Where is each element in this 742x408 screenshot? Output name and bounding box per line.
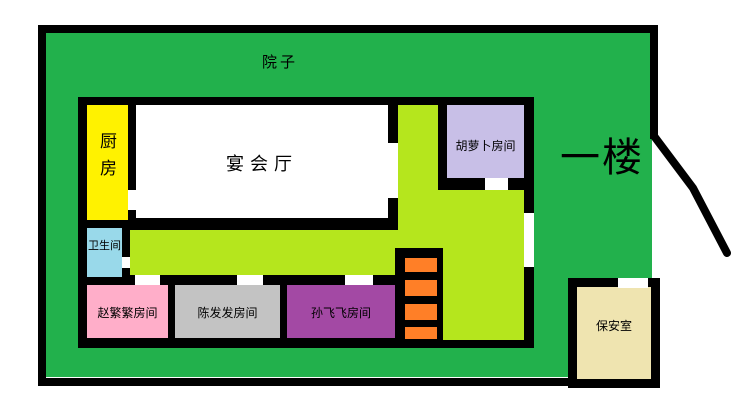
chen-room-label: 陈发发房间 [175, 304, 280, 321]
kitchen-label: 厨房 [94, 132, 119, 186]
carrot-room-label: 胡萝卜房间 [447, 137, 524, 154]
door-building-east [524, 213, 534, 267]
zhao-room-label: 赵繁繁房间 [87, 304, 168, 321]
stair-step [405, 327, 437, 339]
door-chen-room [237, 275, 263, 285]
banquet-hall-label: 宴会厅 [136, 150, 388, 176]
door-kitchen [128, 190, 136, 210]
outer-wall-top [38, 25, 658, 33]
stair-step [405, 258, 437, 272]
door-banquet-hall [388, 143, 398, 198]
floor-plan-canvas: 院子 一楼 厨房 宴会厅 胡萝卜房间 卫生间 赵繁繁房间 陈发发房间 孙飞飞房间… [0, 0, 742, 408]
stair-step [405, 304, 437, 320]
diagonal-wall-line [645, 130, 740, 265]
door-bathroom [122, 257, 130, 268]
bathroom-label: 卫生间 [88, 237, 121, 253]
sun-room-label: 孙飞飞房间 [287, 304, 395, 321]
door-zhao-room [135, 275, 160, 285]
door-carrot-room [485, 178, 508, 190]
outer-wall-right [650, 25, 658, 139]
stair-step [405, 280, 437, 296]
courtyard-label: 院子 [250, 51, 310, 72]
door-security-room [618, 278, 648, 288]
security-room-label: 保安室 [577, 317, 651, 334]
stairs [395, 248, 443, 346]
door-sun-room [345, 275, 373, 285]
outer-wall-left [38, 25, 46, 386]
corridor-hallway [130, 230, 398, 275]
corridor-vertical [398, 105, 438, 190]
floor-label: 一楼 [560, 125, 644, 183]
outer-wall-bottom [38, 378, 578, 386]
